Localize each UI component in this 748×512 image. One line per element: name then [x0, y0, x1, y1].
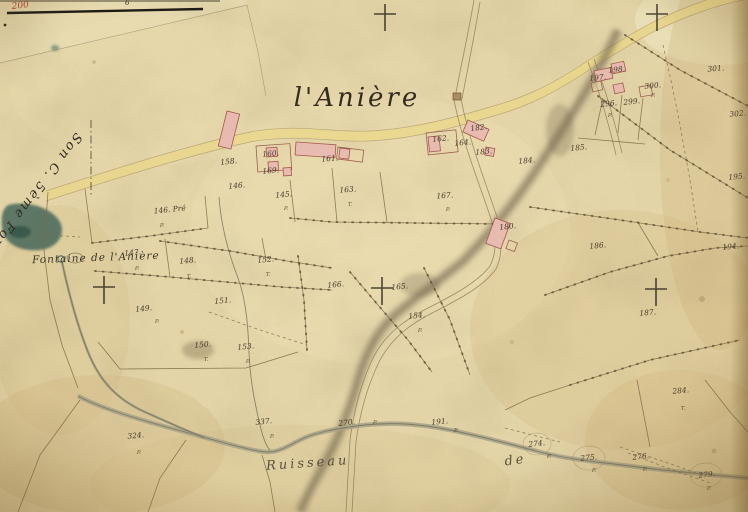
- map-canvas: 200 6 l'Anière Fontaine de l'Anière Ruis…: [0, 0, 748, 512]
- cadastral-map-sheet: 200 6 l'Anière Fontaine de l'Anière Ruis…: [0, 0, 748, 512]
- edge-vignette: [0, 0, 748, 512]
